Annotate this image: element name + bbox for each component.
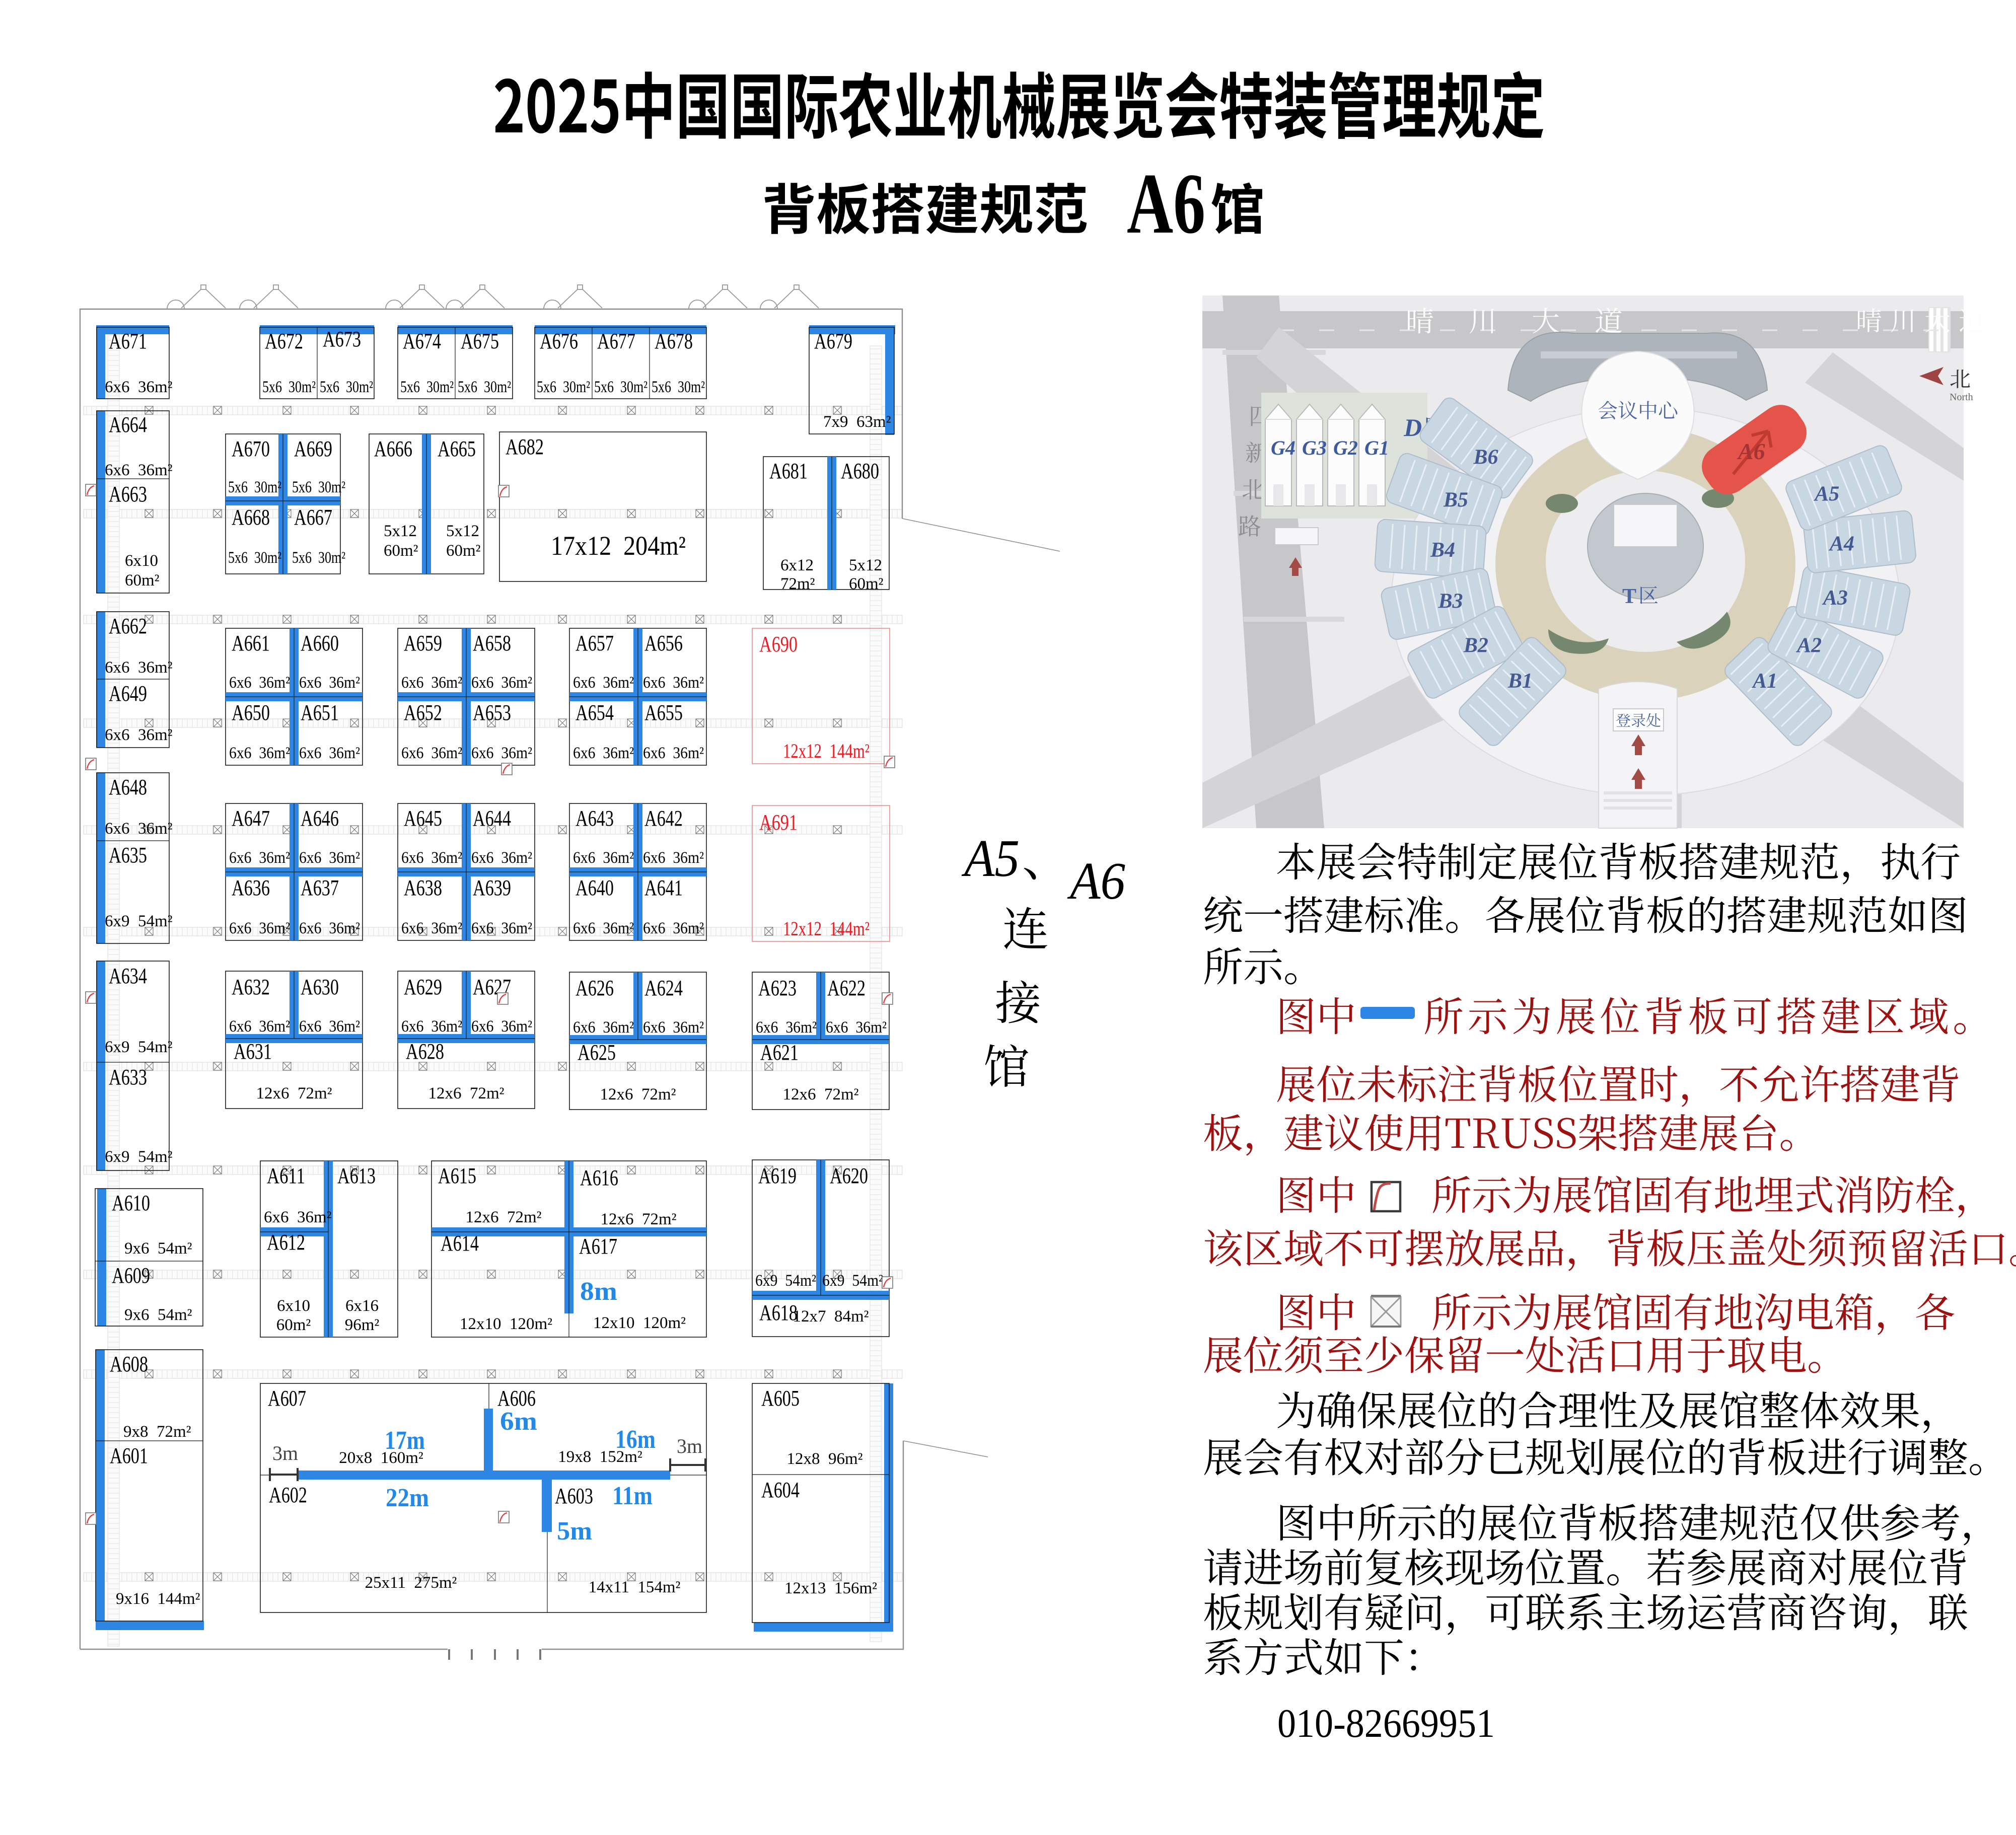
svg-text:A638: A638 xyxy=(404,875,442,900)
svg-text:6x6 36m²: 6x6 36m² xyxy=(401,674,462,692)
svg-text:A663: A663 xyxy=(109,482,147,506)
svg-text:A637: A637 xyxy=(301,875,339,900)
svg-text:12x6 72m²: 12x6 72m² xyxy=(428,1084,504,1103)
svg-text:A690: A690 xyxy=(759,632,798,656)
svg-text:A668: A668 xyxy=(232,505,270,530)
svg-text:5x6 30m²: 5x6 30m² xyxy=(262,378,316,396)
svg-text:5x6 30m²: 5x6 30m² xyxy=(400,378,454,396)
svg-text:6x6 36m²: 6x6 36m² xyxy=(401,744,462,762)
svg-text:A647: A647 xyxy=(232,806,270,831)
svg-text:12x10 120m²: 12x10 120m² xyxy=(460,1315,552,1333)
svg-text:A605: A605 xyxy=(761,1386,800,1411)
svg-text:5x6 30m²: 5x6 30m² xyxy=(292,549,345,567)
svg-text:A669: A669 xyxy=(294,436,332,461)
svg-text:A691: A691 xyxy=(759,810,798,835)
svg-text:6x6 36m²: 6x6 36m² xyxy=(471,919,532,937)
svg-text:A614: A614 xyxy=(441,1231,479,1256)
svg-text:A628: A628 xyxy=(406,1039,444,1064)
svg-text:8m: 8m xyxy=(580,1277,617,1306)
svg-text:A646: A646 xyxy=(301,806,339,831)
svg-text:12x6 72m²: 12x6 72m² xyxy=(256,1084,332,1103)
svg-text:B6: B6 xyxy=(1473,446,1498,469)
svg-text:96m²: 96m² xyxy=(345,1316,380,1334)
svg-text:A666: A666 xyxy=(374,436,412,461)
svg-text:A615: A615 xyxy=(438,1163,476,1188)
svg-text:A665: A665 xyxy=(438,436,476,461)
svg-text:6x6 36m²: 6x6 36m² xyxy=(105,378,173,396)
svg-text:5x6 30m²: 5x6 30m² xyxy=(228,478,281,496)
svg-text:A624: A624 xyxy=(644,976,683,1000)
svg-text:5x6 30m²: 5x6 30m² xyxy=(320,378,373,396)
svg-text:9x8 72m²: 9x8 72m² xyxy=(123,1423,191,1441)
svg-text:T: T xyxy=(1622,585,1636,608)
svg-text:A632: A632 xyxy=(232,975,270,999)
svg-text:A5: A5 xyxy=(1813,482,1839,505)
svg-text:A674: A674 xyxy=(403,329,441,353)
svg-text:B4: B4 xyxy=(1430,539,1455,562)
svg-text:A625: A625 xyxy=(578,1040,616,1065)
svg-text:A613: A613 xyxy=(337,1163,376,1188)
svg-text:010-82669951: 010-82669951 xyxy=(1277,1702,1495,1746)
svg-text:A659: A659 xyxy=(404,631,442,655)
svg-text:6x6 36m²: 6x6 36m² xyxy=(401,1017,462,1036)
svg-text:G3: G3 xyxy=(1302,436,1327,459)
svg-text:A644: A644 xyxy=(473,806,511,831)
svg-text:A2: A2 xyxy=(1795,634,1822,657)
svg-text:12x10 120m²: 12x10 120m² xyxy=(593,1314,686,1332)
svg-text:A5: A5 xyxy=(961,829,1020,888)
svg-text:5x6 30m²: 5x6 30m² xyxy=(228,549,281,567)
svg-text:60m²: 60m² xyxy=(276,1316,311,1334)
svg-text:12x12 144m²: 12x12 144m² xyxy=(783,917,870,940)
svg-text:12x6 72m²: 12x6 72m² xyxy=(465,1208,541,1226)
svg-text:A622: A622 xyxy=(827,976,866,1000)
svg-text:6x6 36m²: 6x6 36m² xyxy=(643,919,704,937)
svg-text:A607: A607 xyxy=(268,1386,306,1411)
svg-text:A621: A621 xyxy=(760,1040,799,1065)
svg-text:A653: A653 xyxy=(473,700,511,725)
svg-text:6x6 36m²: 6x6 36m² xyxy=(105,658,173,677)
svg-text:A658: A658 xyxy=(473,631,511,655)
svg-text:A660: A660 xyxy=(301,631,339,655)
svg-text:A661: A661 xyxy=(232,631,270,655)
svg-text:A662: A662 xyxy=(109,614,147,638)
svg-text:6x6 36m²: 6x6 36m² xyxy=(471,1017,532,1036)
svg-text:5x12: 5x12 xyxy=(849,556,882,574)
svg-text:North: North xyxy=(1950,392,1973,403)
svg-text:A6: A6 xyxy=(1127,156,1205,252)
svg-text:7x9 63m²: 7x9 63m² xyxy=(823,413,891,431)
svg-text:5x6 30m²: 5x6 30m² xyxy=(652,378,705,396)
svg-text:6x6 36m²: 6x6 36m² xyxy=(471,849,532,867)
svg-text:A671: A671 xyxy=(109,329,147,353)
svg-text:60m²: 60m² xyxy=(849,575,884,593)
svg-text:6x6 36m²: 6x6 36m² xyxy=(826,1018,887,1037)
svg-text:A681: A681 xyxy=(769,459,808,483)
svg-text:A645: A645 xyxy=(404,806,442,831)
svg-text:6x6 36m²: 6x6 36m² xyxy=(756,1018,817,1037)
svg-text:A672: A672 xyxy=(265,329,303,353)
svg-text:6x10: 6x10 xyxy=(125,552,158,570)
svg-text:G4: G4 xyxy=(1271,436,1295,459)
svg-text:A670: A670 xyxy=(232,436,270,461)
svg-text:A619: A619 xyxy=(758,1163,797,1188)
svg-text:5m: 5m xyxy=(557,1517,592,1546)
svg-text:6x6 36m²: 6x6 36m² xyxy=(573,744,634,762)
svg-text:A636: A636 xyxy=(232,875,270,900)
svg-text:A601: A601 xyxy=(110,1443,148,1468)
svg-text:6x9 54m²: 6x9 54m² xyxy=(105,1038,173,1056)
svg-text:5x12: 5x12 xyxy=(446,522,479,540)
svg-text:6m: 6m xyxy=(500,1407,537,1436)
svg-text:G1: G1 xyxy=(1364,436,1389,459)
svg-text:A657: A657 xyxy=(575,631,614,655)
svg-text:A643: A643 xyxy=(575,806,614,831)
svg-text:B2: B2 xyxy=(1463,634,1488,657)
svg-text:5x6 30m²: 5x6 30m² xyxy=(458,378,511,396)
svg-text:60m²: 60m² xyxy=(446,542,481,560)
svg-text:A616: A616 xyxy=(580,1165,618,1190)
svg-text:A641: A641 xyxy=(644,875,683,900)
svg-text:A6: A6 xyxy=(1067,851,1125,910)
svg-text:A620: A620 xyxy=(830,1163,868,1188)
svg-text:A679: A679 xyxy=(814,329,852,353)
svg-text:A651: A651 xyxy=(301,700,339,725)
svg-text:6x6 36m²: 6x6 36m² xyxy=(401,919,462,937)
svg-text:A623: A623 xyxy=(758,976,797,1000)
svg-text:A648: A648 xyxy=(109,775,147,799)
svg-text:A610: A610 xyxy=(112,1191,150,1215)
svg-text:A618: A618 xyxy=(759,1300,798,1325)
svg-text:9x6 54m²: 9x6 54m² xyxy=(124,1239,192,1258)
svg-text:5x6 30m²: 5x6 30m² xyxy=(292,478,345,496)
svg-text:12x8 96m²: 12x8 96m² xyxy=(786,1450,862,1468)
svg-text:6x10: 6x10 xyxy=(277,1297,310,1315)
svg-text:12x6 72m²: 12x6 72m² xyxy=(600,1085,676,1104)
svg-text:A626: A626 xyxy=(575,976,614,1000)
svg-text:12x6 72m²: 12x6 72m² xyxy=(782,1085,858,1104)
svg-text:A4: A4 xyxy=(1828,532,1854,555)
svg-text:6x6 36m²: 6x6 36m² xyxy=(264,1208,332,1226)
svg-text:A608: A608 xyxy=(110,1352,148,1376)
svg-text:A604: A604 xyxy=(761,1478,800,1502)
svg-text:A6: A6 xyxy=(1737,438,1765,464)
svg-text:B5: B5 xyxy=(1443,488,1468,511)
svg-text:60m²: 60m² xyxy=(125,571,160,590)
svg-text:A673: A673 xyxy=(323,327,361,351)
svg-text:5x6 30m²: 5x6 30m² xyxy=(537,378,590,396)
svg-text:17x12 204m²: 17x12 204m² xyxy=(551,531,686,561)
svg-text:12x13 156m²: 12x13 156m² xyxy=(784,1579,877,1597)
svg-text:A629: A629 xyxy=(404,975,442,999)
svg-text:6x6 36m²: 6x6 36m² xyxy=(299,1017,360,1036)
svg-text:6x6 36m²: 6x6 36m² xyxy=(573,919,634,937)
svg-text:6x6 36m²: 6x6 36m² xyxy=(643,1018,704,1037)
svg-text:A603: A603 xyxy=(555,1484,593,1508)
svg-text:6x6 36m²: 6x6 36m² xyxy=(299,744,360,762)
svg-text:6x6 36m²: 6x6 36m² xyxy=(105,820,173,838)
svg-text:A640: A640 xyxy=(575,875,614,900)
svg-text:20x8 160m²: 20x8 160m² xyxy=(339,1449,423,1467)
svg-text:B3: B3 xyxy=(1438,590,1463,613)
svg-text:6x12: 6x12 xyxy=(780,556,814,574)
svg-text:6x6 36m²: 6x6 36m² xyxy=(229,849,290,867)
svg-text:A630: A630 xyxy=(301,975,339,999)
svg-text:A655: A655 xyxy=(644,700,683,725)
svg-text:A631: A631 xyxy=(234,1039,272,1064)
svg-text:6x6 36m²: 6x6 36m² xyxy=(229,674,290,692)
svg-text:A652: A652 xyxy=(404,700,442,725)
svg-text:12x12 144m²: 12x12 144m² xyxy=(783,740,870,762)
svg-text:72m²: 72m² xyxy=(780,575,815,593)
svg-text:A3: A3 xyxy=(1822,586,1848,610)
svg-text:A667: A667 xyxy=(294,505,332,530)
svg-text:A650: A650 xyxy=(232,700,270,725)
svg-text:A602: A602 xyxy=(269,1483,307,1507)
svg-text:D: D xyxy=(1403,413,1422,442)
svg-text:A639: A639 xyxy=(473,875,511,900)
svg-text:25x11 275m²: 25x11 275m² xyxy=(365,1574,457,1592)
svg-text:A682: A682 xyxy=(506,434,544,459)
svg-text:3m: 3m xyxy=(272,1442,298,1464)
svg-text:6x9 54m²: 6x9 54m² xyxy=(755,1272,816,1290)
svg-text:A677: A677 xyxy=(597,329,635,353)
svg-text:A656: A656 xyxy=(644,631,683,655)
svg-text:6x6 36m²: 6x6 36m² xyxy=(229,919,290,937)
svg-text:12x7 84m²: 12x7 84m² xyxy=(793,1307,869,1326)
svg-text:A678: A678 xyxy=(655,329,693,353)
svg-text:6x6 36m²: 6x6 36m² xyxy=(643,744,704,762)
svg-text:A634: A634 xyxy=(109,964,147,988)
svg-text:6x6 36m²: 6x6 36m² xyxy=(401,849,462,867)
svg-text:A654: A654 xyxy=(575,700,614,725)
svg-text:A675: A675 xyxy=(461,329,499,353)
svg-text:G2: G2 xyxy=(1333,436,1358,459)
svg-text:6x9 54m²: 6x9 54m² xyxy=(822,1272,883,1290)
svg-text:6x6 36m²: 6x6 36m² xyxy=(229,744,290,762)
svg-text:6x9 54m²: 6x9 54m² xyxy=(105,1148,173,1166)
svg-text:6x16: 6x16 xyxy=(345,1297,379,1315)
svg-text:5x12: 5x12 xyxy=(384,522,417,540)
svg-text:6x6 36m²: 6x6 36m² xyxy=(299,919,360,937)
svg-text:9x16 144m²: 9x16 144m² xyxy=(116,1590,200,1608)
svg-text:6x9 54m²: 6x9 54m² xyxy=(105,912,173,930)
svg-text:11m: 11m xyxy=(612,1482,653,1510)
svg-text:22m: 22m xyxy=(386,1484,429,1512)
svg-text:6x6 36m²: 6x6 36m² xyxy=(471,744,532,762)
svg-text:A609: A609 xyxy=(112,1263,150,1288)
svg-text:9x6 54m²: 9x6 54m² xyxy=(124,1306,192,1324)
svg-text:6x6 36m²: 6x6 36m² xyxy=(299,849,360,867)
svg-text:A617: A617 xyxy=(579,1234,617,1259)
svg-text:A664: A664 xyxy=(109,412,147,437)
svg-text:6x6 36m²: 6x6 36m² xyxy=(573,674,634,692)
svg-text:A611: A611 xyxy=(267,1163,305,1188)
svg-text:6x6 36m²: 6x6 36m² xyxy=(573,849,634,867)
svg-text:6x6 36m²: 6x6 36m² xyxy=(229,1017,290,1036)
svg-text:14x11 154m²: 14x11 154m² xyxy=(589,1578,681,1596)
svg-text:19x8 152m²: 19x8 152m² xyxy=(558,1448,642,1466)
svg-text:6x6 36m²: 6x6 36m² xyxy=(643,674,704,692)
svg-text:A633: A633 xyxy=(109,1065,147,1089)
svg-text:6x6 36m²: 6x6 36m² xyxy=(105,726,173,744)
svg-text:12x6 72m²: 12x6 72m² xyxy=(600,1210,676,1228)
svg-text:60m²: 60m² xyxy=(384,542,418,560)
svg-text:6x6 36m²: 6x6 36m² xyxy=(105,461,173,479)
svg-text:3m: 3m xyxy=(677,1435,702,1457)
svg-text:A649: A649 xyxy=(109,681,147,706)
svg-text:B1: B1 xyxy=(1507,670,1533,693)
svg-text:A612: A612 xyxy=(267,1230,305,1255)
svg-text:A1: A1 xyxy=(1751,670,1777,693)
svg-text:A680: A680 xyxy=(841,459,879,483)
svg-text:6x6 36m²: 6x6 36m² xyxy=(643,849,704,867)
svg-text:5x6 30m²: 5x6 30m² xyxy=(594,378,647,396)
svg-text:6x6 36m²: 6x6 36m² xyxy=(573,1018,634,1037)
svg-text:6x6 36m²: 6x6 36m² xyxy=(299,674,360,692)
svg-text:A635: A635 xyxy=(109,843,147,867)
svg-text:6x6 36m²: 6x6 36m² xyxy=(471,674,532,692)
svg-text:A676: A676 xyxy=(540,329,578,353)
svg-text:A642: A642 xyxy=(644,806,683,831)
